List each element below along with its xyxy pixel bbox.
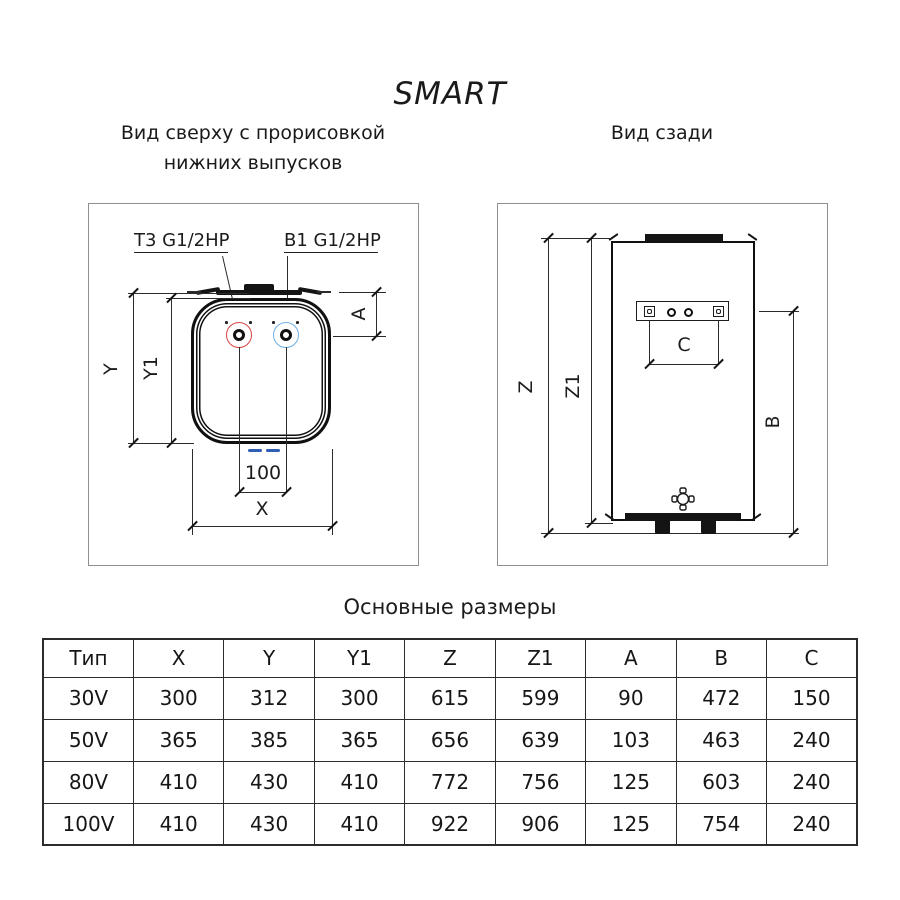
dim-line-b: [793, 311, 794, 533]
cell: 125: [586, 803, 676, 845]
back-view-caption: Вид сзади: [497, 118, 827, 148]
table-row: 50V 365 385 365 656 639 103 463 240: [43, 719, 857, 761]
cell: 80V: [43, 761, 133, 803]
col-header: B: [676, 639, 766, 677]
tank-back-view: [611, 241, 755, 521]
cell: 410: [133, 803, 223, 845]
bottom-fitting: [248, 449, 262, 452]
cell: 90: [586, 677, 676, 719]
top-view-caption-line1: Вид сверху с прорисовкой: [88, 118, 418, 148]
extension-line: [166, 298, 251, 299]
dim-line-a: [376, 292, 377, 336]
cold-port-label: B1 G1/2HP: [284, 230, 378, 253]
cell: 472: [676, 677, 766, 719]
top-view-panel: T3 G1/2HP B1 G1/2HP Y: [88, 203, 419, 566]
col-header: Y1: [314, 639, 404, 677]
drawing-sheet: SMART Вид сверху с прорисовкой нижних вы…: [0, 0, 900, 900]
extension-line: [128, 443, 194, 444]
dim-label-100: 100: [235, 462, 291, 484]
screw-dot: [249, 321, 252, 324]
table-row: 100V 410 430 410 922 906 125 754 240: [43, 803, 857, 845]
cell: 312: [224, 677, 314, 719]
col-header: A: [586, 639, 676, 677]
table-header-row: Тип X Y Y1 Z Z1 A B C: [43, 639, 857, 677]
extension-line: [718, 321, 719, 365]
cell: 300: [133, 677, 223, 719]
bottom-band: [625, 513, 741, 521]
cell: 603: [676, 761, 766, 803]
extension-line: [192, 449, 193, 535]
cell: 50V: [43, 719, 133, 761]
dim-label-b: B: [762, 404, 784, 440]
cell: 365: [133, 719, 223, 761]
cell: 240: [767, 803, 858, 845]
cell: 615: [405, 677, 495, 719]
cell: 240: [767, 761, 858, 803]
cell: 656: [405, 719, 495, 761]
page-title: SMART: [0, 76, 900, 112]
bracket-stub-right: [317, 291, 331, 293]
bracket-hole-left: [644, 306, 655, 317]
cell: 430: [224, 761, 314, 803]
table-title: Основные размеры: [0, 595, 900, 619]
cell: 103: [586, 719, 676, 761]
table-row: 80V 410 430 410 772 756 125 603 240: [43, 761, 857, 803]
dim-line-z1: [591, 238, 592, 523]
hot-port-fitting: [233, 329, 245, 341]
extension-line: [649, 321, 650, 365]
cell: 410: [314, 761, 404, 803]
cell: 756: [495, 761, 585, 803]
col-header: Z1: [495, 639, 585, 677]
col-header: Y: [224, 639, 314, 677]
cell: 125: [586, 761, 676, 803]
extension-line: [332, 449, 333, 535]
dim-line-100: [239, 492, 286, 493]
extension-line: [128, 293, 249, 294]
screw-dot: [225, 321, 228, 324]
corner-mark: [608, 233, 618, 241]
cell: 772: [405, 761, 495, 803]
bracket-screw: [684, 308, 693, 317]
cell: 906: [495, 803, 585, 845]
dim-label-c: C: [670, 334, 698, 356]
extension-line: [541, 533, 799, 534]
cell: 922: [405, 803, 495, 845]
col-header: Z: [405, 639, 495, 677]
dim-line-z: [548, 238, 549, 533]
dim-line-y1: [171, 298, 172, 443]
dimensions-table: Тип X Y Y1 Z Z1 A B C 30V 300 312 300 61…: [42, 638, 858, 846]
dim-label-y1: Y1: [140, 350, 162, 386]
dim-label-z1: Z1: [562, 368, 584, 404]
cell: 100V: [43, 803, 133, 845]
dim-line-x: [192, 526, 332, 527]
drain-valve-icon: [670, 486, 696, 512]
hot-port-label: T3 G1/2HP: [134, 230, 228, 253]
col-header: Тип: [43, 639, 133, 677]
cell: 150: [767, 677, 858, 719]
cell: 365: [314, 719, 404, 761]
dim-label-z: Z: [515, 371, 537, 403]
cell: 463: [676, 719, 766, 761]
screw-dot: [272, 321, 275, 324]
dim-line-y: [133, 293, 134, 443]
dim-label-a: A: [348, 298, 370, 330]
bracket-hole-right: [713, 306, 724, 317]
cell: 385: [224, 719, 314, 761]
dim-label-x: X: [242, 498, 282, 520]
cell: 430: [224, 803, 314, 845]
cell: 30V: [43, 677, 133, 719]
screw-dot: [296, 321, 299, 324]
dim-line-c: [649, 364, 718, 365]
dim-label-y: Y: [100, 353, 122, 385]
top-view-caption-line2: нижних выпусков: [88, 148, 418, 178]
cell: 599: [495, 677, 585, 719]
bracket-boss: [244, 284, 274, 293]
top-view-caption: Вид сверху с прорисовкой нижних выпусков: [88, 118, 418, 178]
extension-line: [541, 238, 611, 239]
pipe-stub-left: [655, 521, 670, 534]
bracket-screw: [667, 308, 676, 317]
cell: 300: [314, 677, 404, 719]
cell: 410: [133, 761, 223, 803]
cell: 639: [495, 719, 585, 761]
extension-line: [333, 336, 386, 337]
cell: 754: [676, 803, 766, 845]
pipe-stub-right: [701, 521, 716, 534]
back-view-panel: C Z Z1 B: [497, 203, 828, 566]
cold-port-fitting: [280, 329, 292, 341]
col-header: X: [133, 639, 223, 677]
table-row: 30V 300 312 300 615 599 90 472 150: [43, 677, 857, 719]
extension-line: [339, 292, 386, 293]
cell: 240: [767, 719, 858, 761]
cell: 410: [314, 803, 404, 845]
corner-mark: [747, 233, 757, 241]
top-cover-bar: [645, 234, 723, 242]
col-header: C: [767, 639, 858, 677]
tank-top-view: [191, 298, 331, 444]
bottom-fitting: [266, 449, 280, 452]
